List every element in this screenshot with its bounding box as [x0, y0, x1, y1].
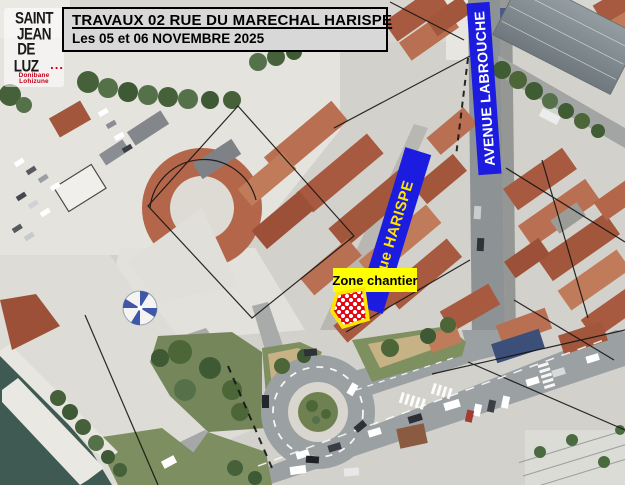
city-logo: SAINT JEAN DE LUZ ... Donibane Lohizune — [4, 8, 64, 87]
title-box: TRAVAUX 02 RUE DU MARECHAL HARISPE Les 0… — [62, 7, 388, 52]
zone-chantier-label: Zone chantier — [333, 268, 417, 292]
aerial-photo-background — [0, 0, 625, 485]
map-title: TRAVAUX 02 RUE DU MARECHAL HARISPE — [72, 12, 380, 29]
carousel — [123, 291, 157, 325]
logo-dots: ... — [50, 60, 64, 70]
zone-chantier-checker-fill — [334, 291, 366, 325]
logo-text-de-luz: DE LUZ — [4, 41, 48, 74]
travaux-map: SAINT JEAN DE LUZ ... Donibane Lohizune … — [0, 0, 625, 485]
map-dates: Les 05 et 06 NOVEMBRE 2025 — [72, 31, 380, 46]
logo-subtitle: Donibane Lohizune — [4, 73, 64, 86]
